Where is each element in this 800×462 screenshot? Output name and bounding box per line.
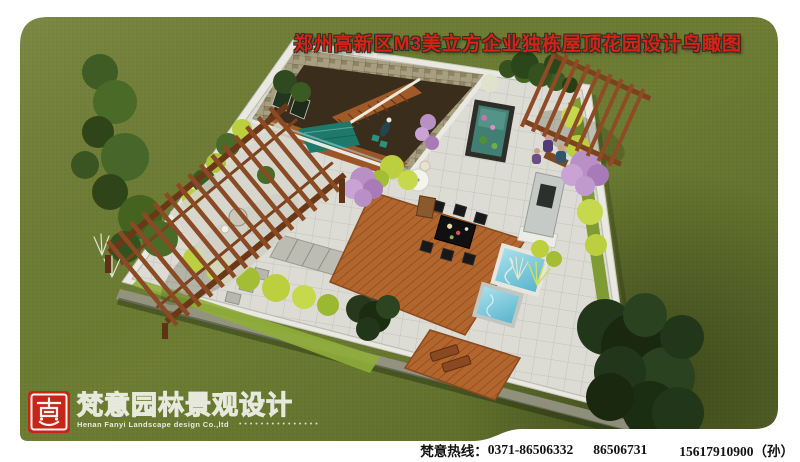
company-name-en: Henan Fanyi Landscape design Co.,ltd	[77, 420, 229, 429]
phone-number-1: 0371-86506332	[488, 442, 574, 458]
design-board: 郑州高新区M3美立方企业独栋屋顶花园设计鸟瞰图 梵意园林景观设计 Henan F…	[0, 0, 800, 462]
hotline-label: 梵意热线：	[420, 440, 488, 460]
koi-pond	[468, 102, 512, 159]
phone-number-3: 15617910900（孙）	[679, 440, 794, 460]
company-name-cn: 梵意园林景观设计	[77, 391, 321, 419]
rooftop-garden-rendering	[20, 17, 780, 441]
logo-dots: •••••••••••••••	[239, 421, 321, 428]
phone-number-2: 86506731	[593, 442, 647, 458]
contact-bar: 梵意热线： 0371-86506332 86506731 15617910900…	[420, 441, 794, 459]
wooden-cart	[416, 196, 435, 218]
page-title: 郑州高新区M3美立方企业独栋屋顶花园设计鸟瞰图	[294, 29, 742, 56]
company-logo: 梵意园林景观设计 Henan Fanyi Landscape design Co…	[28, 391, 321, 433]
seal-icon	[28, 391, 70, 433]
